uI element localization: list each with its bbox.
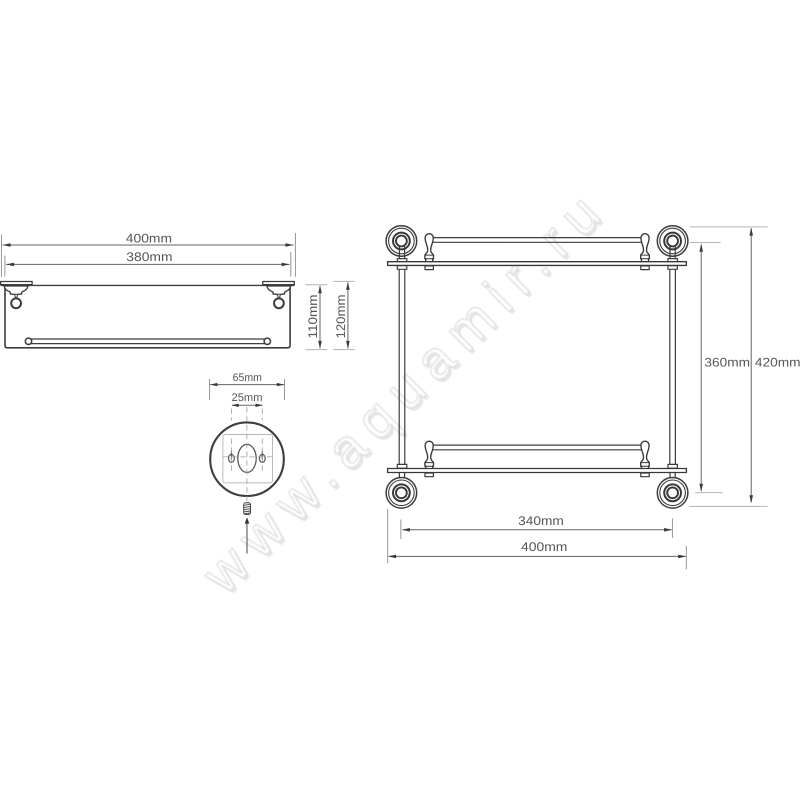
svg-text:120mm: 120mm: [334, 295, 348, 339]
svg-text:380mm: 380mm: [126, 250, 172, 264]
svg-text:400mm: 400mm: [126, 231, 172, 245]
svg-text:110mm: 110mm: [306, 295, 320, 339]
svg-text:420mm: 420mm: [755, 355, 800, 369]
svg-text:360mm: 360mm: [704, 355, 750, 369]
svg-text:65mm: 65mm: [233, 372, 262, 384]
svg-text:340mm: 340mm: [518, 514, 564, 528]
svg-text:25mm: 25mm: [232, 392, 263, 404]
svg-text:400mm: 400mm: [521, 540, 567, 554]
